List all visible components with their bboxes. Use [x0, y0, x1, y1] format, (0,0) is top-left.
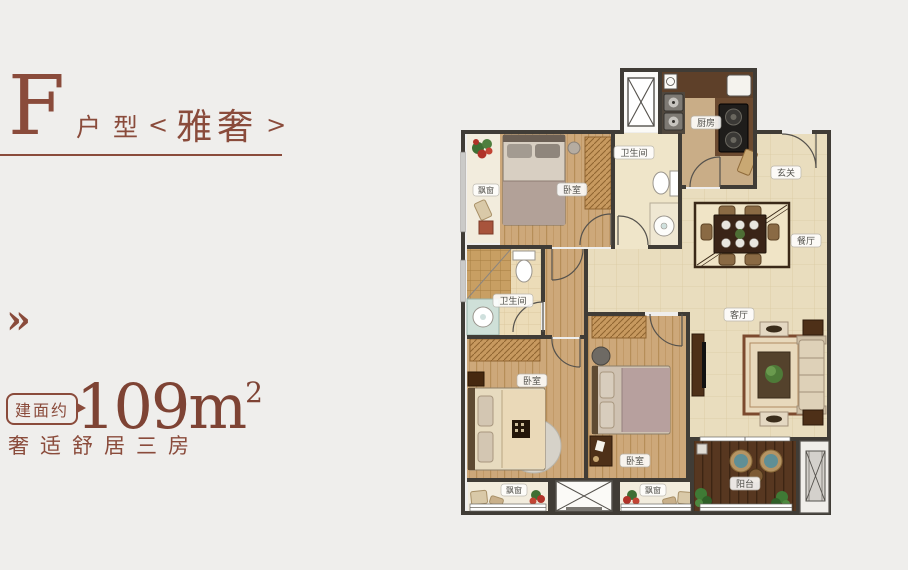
tv-console: [692, 334, 706, 396]
desk-3: [590, 436, 612, 466]
svg-text:客厅: 客厅: [730, 309, 748, 321]
stool-1: [568, 142, 580, 154]
dining-set: [695, 203, 789, 267]
room-label-bay-bottom-left: 飘窗: [501, 484, 527, 496]
room-label-living: 客厅: [724, 308, 754, 321]
bench-b: [760, 412, 788, 426]
unit-letter: F: [8, 66, 65, 148]
room-label-bedroom-3: 卧室: [620, 454, 650, 467]
unit-name-text: 雅奢: [176, 107, 258, 148]
bracket-left-icon: <: [140, 111, 176, 139]
hall-floor: [588, 249, 686, 312]
bay-decor-2: [479, 221, 493, 234]
room-label-bedroom-2: 卧室: [517, 374, 547, 387]
area-badge-text: 建面约: [15, 401, 69, 420]
bed-1: [503, 135, 565, 225]
double-chevron-icon: »: [6, 300, 31, 340]
svg-text:卧室: 卧室: [563, 184, 581, 196]
svg-text:卫生间: 卫生间: [499, 295, 526, 307]
corridor-floor: [545, 249, 584, 337]
svg-text:飘窗: 飘窗: [506, 485, 522, 495]
room-label-bathroom-1: 卫生间: [614, 146, 654, 159]
svg-text:餐厅: 餐厅: [797, 235, 815, 247]
elevator-shaft-top: [628, 78, 654, 126]
room-label-bay-bottom-mid: 飘窗: [640, 484, 666, 496]
floorplan-poster: { "page": { "background": "#efeeec", "ac…: [0, 0, 908, 570]
wardrobe-2: [470, 339, 540, 361]
wardrobe-3: [592, 316, 646, 338]
svg-text:飘窗: 飘窗: [478, 185, 494, 195]
bracket-right-icon: >: [258, 111, 294, 139]
svg-text:卫生间: 卫生间: [620, 147, 647, 159]
bed-2: [468, 388, 545, 470]
toilet-1: [653, 171, 679, 196]
area-value: 109m2: [76, 362, 263, 438]
room-label-bay-top-left: 飘窗: [473, 184, 499, 196]
window-bay-bottom-mid: [621, 504, 691, 511]
elevator-shaft-bottom: [800, 441, 829, 513]
gas-stove: [719, 104, 748, 152]
unit-name: <雅奢>: [140, 98, 294, 150]
window-bathroom-2: [461, 260, 465, 302]
info-panel: F 户型 <雅奢> » 建面约 109m2 奢适舒居三房: [8, 0, 298, 570]
side-table-b: [803, 410, 823, 425]
nightstand-2a: [468, 372, 484, 386]
room-label-bedroom-1: 卧室: [557, 183, 587, 196]
svg-text:卧室: 卧室: [626, 455, 644, 467]
svg-text:阳台: 阳台: [736, 478, 754, 490]
equipment-platform: [556, 481, 612, 511]
svg-text:飘窗: 飘窗: [645, 485, 661, 495]
kitchen-sink: [662, 92, 685, 134]
headline-divider: [0, 154, 282, 156]
room-label-kitchen: 厨房: [691, 116, 721, 129]
unit-type-label: 户型: [76, 108, 150, 144]
side-table-a: [803, 320, 823, 335]
floorplan: 飘窗 卧室 卫生间 厨房 玄关 餐厅 卫生间 卧室: [448, 58, 846, 520]
room-label-dining: 餐厅: [791, 234, 821, 247]
washbasin-1: [650, 203, 680, 247]
area-superscript: 2: [245, 376, 263, 409]
svg-text:卧室: 卧室: [523, 375, 541, 387]
svg-text:厨房: 厨房: [697, 117, 715, 129]
room-label-foyer: 玄关: [771, 166, 801, 179]
area-badge: 建面约: [6, 393, 78, 425]
svg-text:玄关: 玄关: [777, 167, 795, 179]
bench-a: [760, 322, 788, 336]
room-label-balcony: 阳台: [730, 477, 760, 490]
sofa: [797, 336, 826, 414]
window-bay-bottom-left: [470, 504, 546, 511]
living-rug: [744, 336, 804, 414]
wardrobe-1: [585, 137, 611, 209]
room-label-bathroom-2: 卫生间: [493, 294, 533, 307]
bed-3: [592, 366, 670, 434]
window-bay-left: [461, 152, 465, 232]
balcony-box: [697, 444, 707, 454]
tagline: 奢适舒居三房: [8, 430, 200, 460]
balcony-sliding-door: [700, 437, 790, 441]
window-balcony-rail: [700, 504, 792, 511]
chair-3: [592, 347, 610, 365]
